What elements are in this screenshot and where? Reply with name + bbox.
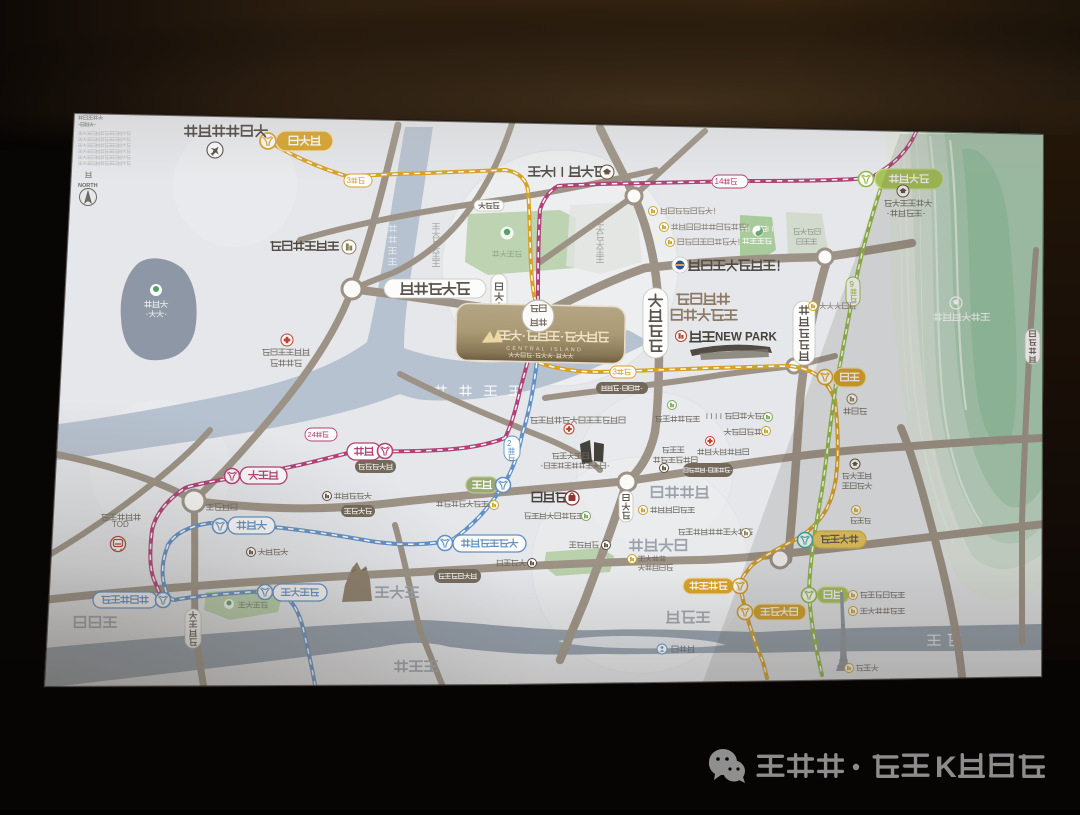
svg-text:K: K bbox=[935, 751, 957, 784]
